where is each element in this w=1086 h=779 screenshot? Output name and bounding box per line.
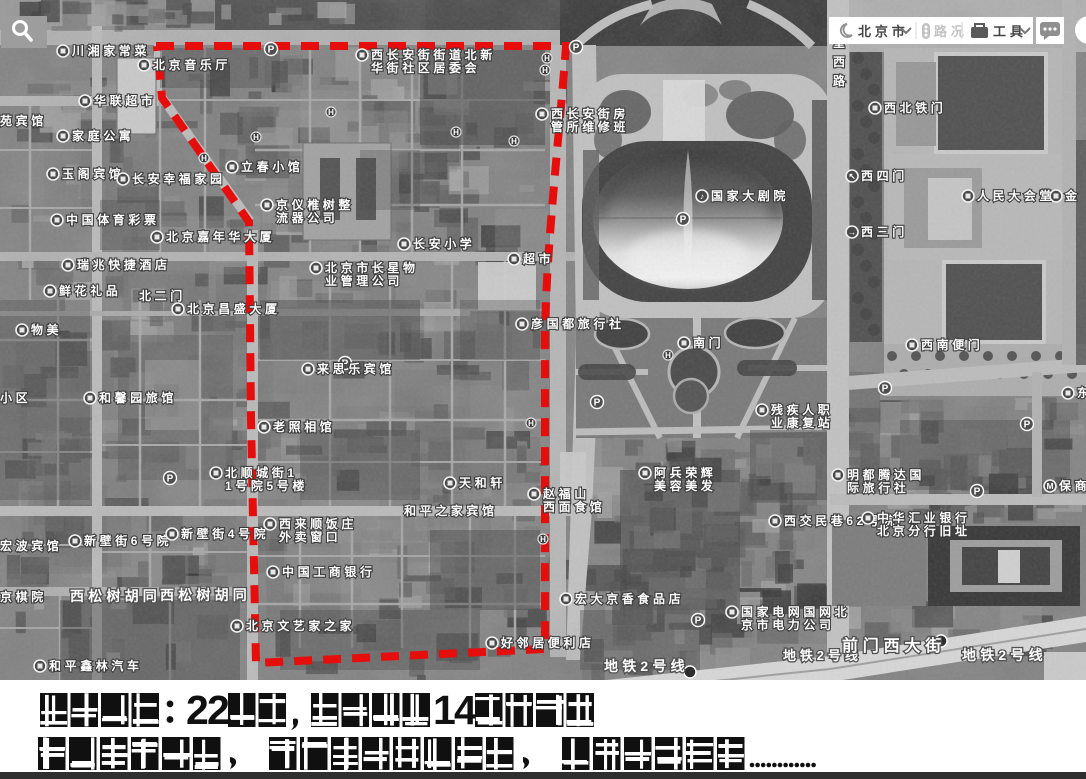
svg-text:中国体育彩票: 中国体育彩票 <box>66 212 160 227</box>
svg-text:东三: 东三 <box>1077 385 1086 400</box>
svg-text:北顺城街1: 北顺城街1 <box>225 465 298 480</box>
svg-text:来思乐宾馆: 来思乐宾馆 <box>316 361 395 376</box>
svg-text:金: 金 <box>1064 188 1081 203</box>
svg-text:北京分行旧址: 北京分行旧址 <box>877 523 971 538</box>
svg-text:地铁2号线: 地铁2号线 <box>962 647 1047 663</box>
svg-text:京棋院: 京棋院 <box>0 589 47 604</box>
svg-text:北京市: 北京市 <box>858 24 909 39</box>
svg-text:P: P <box>594 398 601 409</box>
svg-text:北京音乐厅: 北京音乐厅 <box>153 57 231 72</box>
svg-text:路: 路 <box>833 73 846 88</box>
svg-text:中华汇业银行: 中华汇业银行 <box>877 510 971 525</box>
svg-text:北京文艺家之家: 北京文艺家之家 <box>246 618 355 633</box>
svg-text:京仪椎树整: 京仪椎树整 <box>276 197 354 212</box>
svg-text:H: H <box>542 66 548 75</box>
svg-text:P: P <box>573 43 580 54</box>
svg-text:小区: 小区 <box>0 390 31 405</box>
svg-text:人民大会堂: 人民大会堂 <box>977 188 1055 203</box>
svg-text:P: P <box>1024 420 1031 431</box>
svg-text:西南便门: 西南便门 <box>921 337 983 352</box>
svg-text:P: P <box>268 45 275 56</box>
svg-text:西四门: 西四门 <box>861 168 908 183</box>
svg-text:阿兵荣辉: 阿兵荣辉 <box>654 465 716 480</box>
svg-text:2: 2 <box>207 687 230 733</box>
svg-text:地铁2号线: 地铁2号线 <box>604 658 689 674</box>
svg-text:流器公司: 流器公司 <box>276 210 338 225</box>
svg-text:保商银: 保商银 <box>1058 478 1086 493</box>
svg-text:H: H <box>328 108 334 117</box>
svg-text:H: H <box>665 351 671 360</box>
svg-text:中国工商银行: 中国工商银行 <box>282 564 376 579</box>
svg-text:业管理公司: 业管理公司 <box>325 273 403 288</box>
svg-text:瑞兆快捷酒店: 瑞兆快捷酒店 <box>77 257 171 272</box>
svg-text:P: P <box>695 616 702 627</box>
svg-text:川湘家常菜: 川湘家常菜 <box>71 43 150 58</box>
svg-text:西松树胡同: 西松树胡同 <box>160 587 251 603</box>
svg-text:西长安街街道北新: 西长安街街道北新 <box>371 47 496 62</box>
svg-text:工具: 工具 <box>993 24 1027 39</box>
svg-text:4: 4 <box>454 687 477 733</box>
svg-text:西松树胡同: 西松树胡同 <box>70 588 161 604</box>
svg-text:西面食馆: 西面食馆 <box>543 499 605 514</box>
svg-text:国家大剧院: 国家大剧院 <box>711 188 789 203</box>
svg-text:1: 1 <box>433 687 456 733</box>
svg-text:立春小馆: 立春小馆 <box>241 159 303 174</box>
svg-text:西长安街房: 西长安街房 <box>551 106 629 121</box>
svg-text:H: H <box>528 419 534 428</box>
svg-text:国家电网国网北: 国家电网国网北 <box>741 604 850 619</box>
svg-text:家庭公寓: 家庭公寓 <box>72 128 134 143</box>
svg-text:华街社区居委会: 华街社区居委会 <box>371 60 480 75</box>
svg-text:1号院5号楼: 1号院5号楼 <box>225 478 308 493</box>
svg-text:西三门: 西三门 <box>861 224 908 239</box>
svg-text:P: P <box>167 474 174 485</box>
svg-text:北二门: 北二门 <box>139 288 186 303</box>
svg-text:北京昌盛大厦: 北京昌盛大厦 <box>187 301 281 316</box>
svg-text:北京嘉年华大厦: 北京嘉年华大厦 <box>166 229 275 244</box>
svg-text:新壁街6号院: 新壁街6号院 <box>84 533 172 548</box>
svg-text:H: H <box>453 128 459 137</box>
svg-text:南门: 南门 <box>693 335 724 350</box>
svg-text:物美: 物美 <box>31 322 62 337</box>
svg-text:玉阁宾馆: 玉阁宾馆 <box>62 166 124 181</box>
svg-text:♪: ♪ <box>700 191 704 201</box>
svg-text:际旅行社: 际旅行社 <box>847 480 909 495</box>
svg-text:天和轩: 天和轩 <box>459 475 506 490</box>
svg-text:↖: ↖ <box>848 171 855 181</box>
svg-text:西: 西 <box>833 55 845 69</box>
svg-text:苑宾馆: 苑宾馆 <box>0 113 47 128</box>
svg-text:H: H <box>511 137 517 146</box>
svg-text:管所维修班: 管所维修班 <box>551 119 629 134</box>
svg-text:赵福山: 赵福山 <box>542 486 590 501</box>
svg-text:H: H <box>544 54 550 63</box>
svg-text:彦国都旅行社: 彦国都旅行社 <box>531 316 625 331</box>
svg-text:鲜花礼品: 鲜花礼品 <box>59 283 121 298</box>
svg-text:西北铁门: 西北铁门 <box>884 100 946 115</box>
svg-text:超市: 超市 <box>522 251 554 266</box>
svg-text:宏波宾馆: 宏波宾馆 <box>0 538 62 553</box>
svg-text:和平之家宾馆: 和平之家宾馆 <box>403 503 498 518</box>
svg-text:长安幸福家园: 长安幸福家园 <box>132 171 226 186</box>
svg-text:美容美发: 美容美发 <box>654 478 716 493</box>
svg-text:P: P <box>882 384 889 395</box>
svg-text:P: P <box>680 215 687 226</box>
svg-text:H: H <box>253 133 259 142</box>
svg-text:→: → <box>848 227 857 237</box>
svg-text:业康复站: 业康复站 <box>771 415 833 430</box>
svg-text:京市电力公司: 京市电力公司 <box>741 617 835 632</box>
svg-text:和馨园旅馆: 和馨园旅馆 <box>98 390 177 405</box>
svg-text:M: M <box>1046 481 1053 491</box>
svg-text:长安小学: 长安小学 <box>413 236 475 251</box>
svg-text:宏大京香食品店: 宏大京香食品店 <box>575 591 684 606</box>
svg-text:和平鑫林汽车: 和平鑫林汽车 <box>48 658 143 673</box>
svg-text:老照相馆: 老照相馆 <box>273 419 335 434</box>
svg-text:H: H <box>201 154 207 163</box>
svg-text:外卖窗口: 外卖窗口 <box>279 529 341 544</box>
svg-text:北京市长星物: 北京市长星物 <box>325 260 419 275</box>
svg-text:P: P <box>974 487 981 498</box>
svg-text:H: H <box>540 535 546 544</box>
svg-text:华联超市: 华联超市 <box>94 93 156 108</box>
svg-text:前门西大街: 前门西大街 <box>842 636 946 655</box>
svg-text:西来顺饭庄: 西来顺饭庄 <box>279 516 357 531</box>
svg-text:好邻居便利店: 好邻居便利店 <box>500 635 595 650</box>
svg-text:2: 2 <box>186 687 209 733</box>
svg-text:明都腾达国: 明都腾达国 <box>847 467 925 482</box>
svg-text:新壁街4号院: 新壁街4号院 <box>181 526 269 541</box>
svg-text:残疾人职: 残疾人职 <box>771 402 833 417</box>
